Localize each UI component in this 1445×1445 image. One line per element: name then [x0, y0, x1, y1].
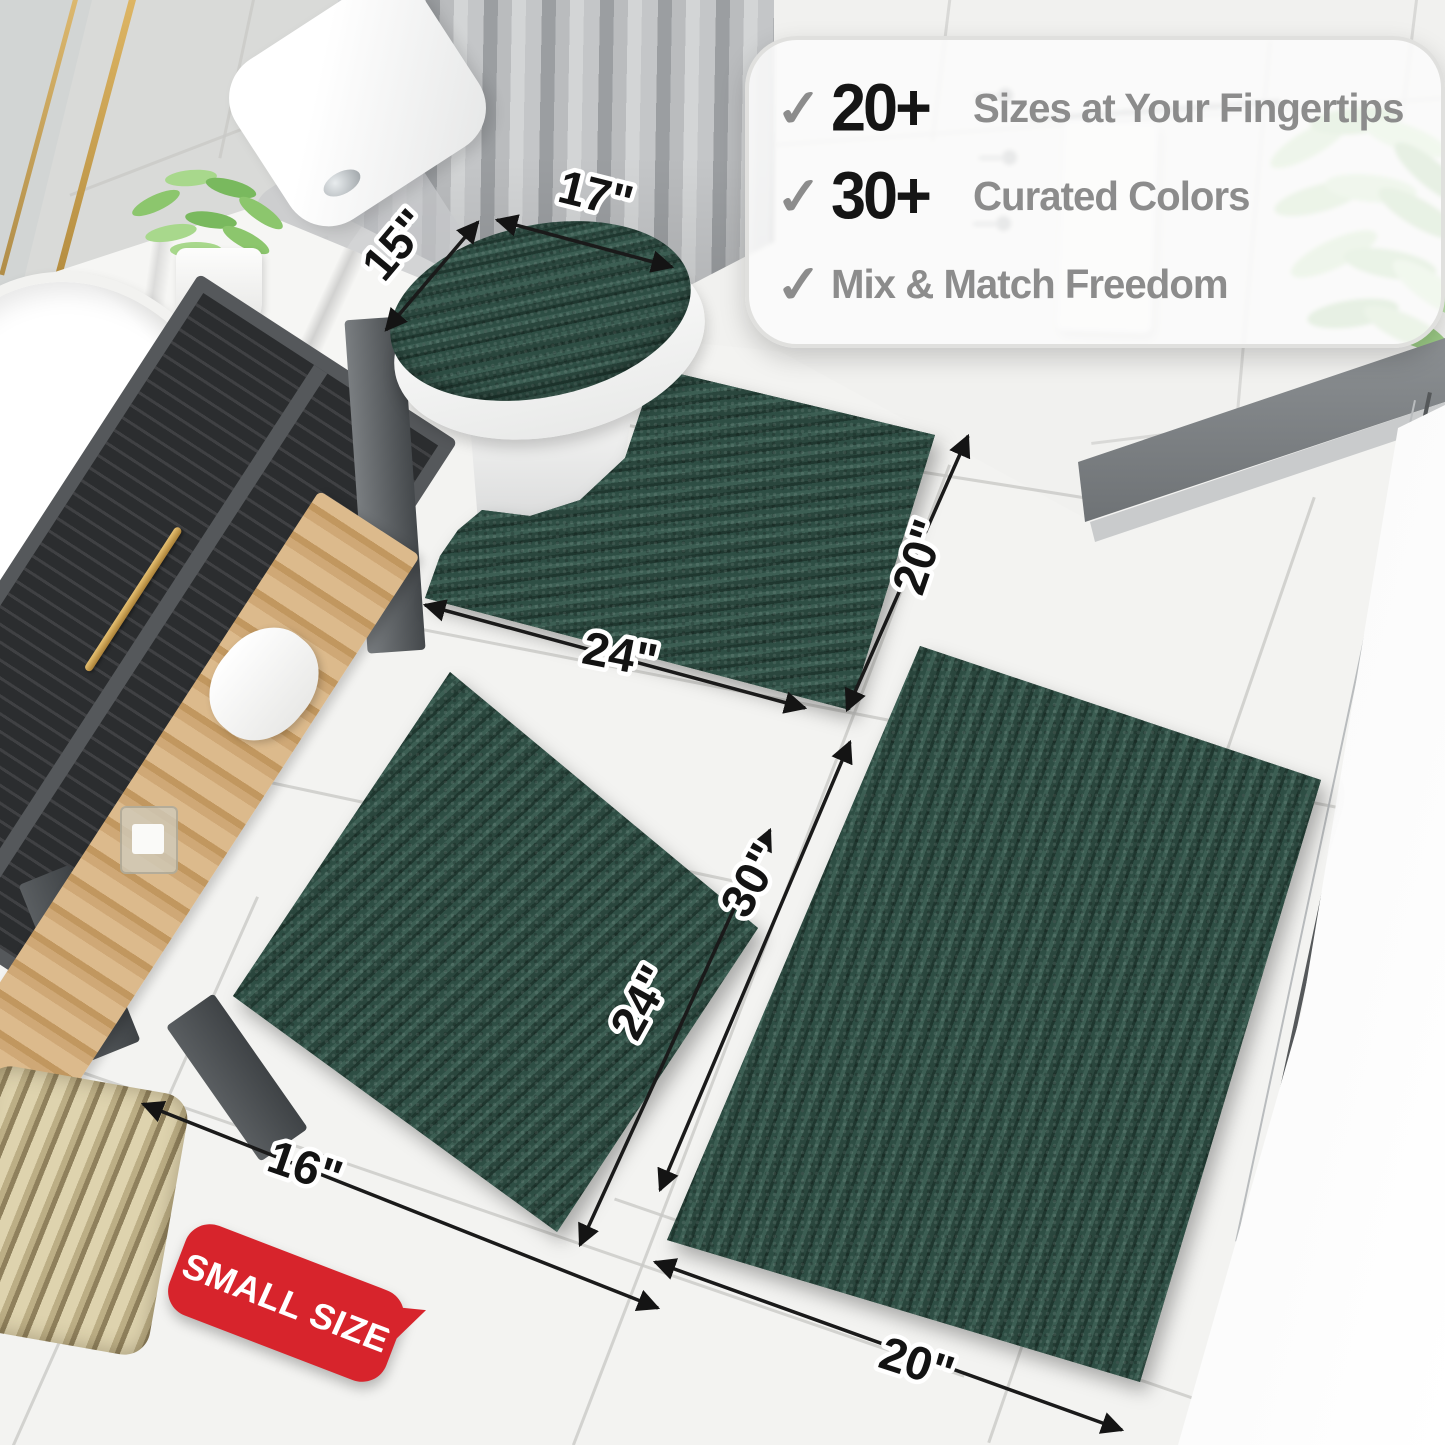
check-icon: ✓ [772, 252, 838, 316]
feature-number: 20+ [831, 70, 973, 146]
check-icon: ✓ [772, 164, 838, 228]
check-icon: ✓ [772, 76, 838, 140]
dimension-arrow-large-length [660, 742, 850, 1190]
feature-row-sizes: ✓ 20+ Sizes at Your Fingertips [779, 64, 1441, 152]
feature-row-colors: ✓ 30+ Curated Colors [779, 152, 1441, 240]
dimension-label-lid-width: 17" [553, 159, 638, 228]
feature-text: Mix & Match Freedom [831, 261, 1228, 308]
product-photo-bathroom-scene: 15" 17" 24" 20" 24" 30" 16" 20" SMALL SI… [0, 0, 1445, 1445]
feature-callout-box: ✓ 20+ Sizes at Your Fingertips ✓ 30+ Cur… [745, 36, 1445, 348]
dimension-label-large-width: 20" [873, 1326, 960, 1399]
dimension-label-contour-depth: 20" [881, 513, 955, 601]
dimension-arrow-lid-width [497, 220, 672, 267]
dimension-label-contour-width: 24" [578, 621, 661, 687]
feature-number: 30+ [831, 158, 973, 234]
dimension-label-small-length: 24" [599, 957, 682, 1048]
dimension-label-lid-depth: 15" [351, 199, 440, 290]
feature-row-mix-match: ✓ Mix & Match Freedom [779, 240, 1441, 328]
feature-text: Sizes at Your Fingertips [973, 85, 1403, 132]
feature-text: Curated Colors [973, 173, 1250, 220]
dimension-label-small-width: 16" [261, 1129, 349, 1203]
